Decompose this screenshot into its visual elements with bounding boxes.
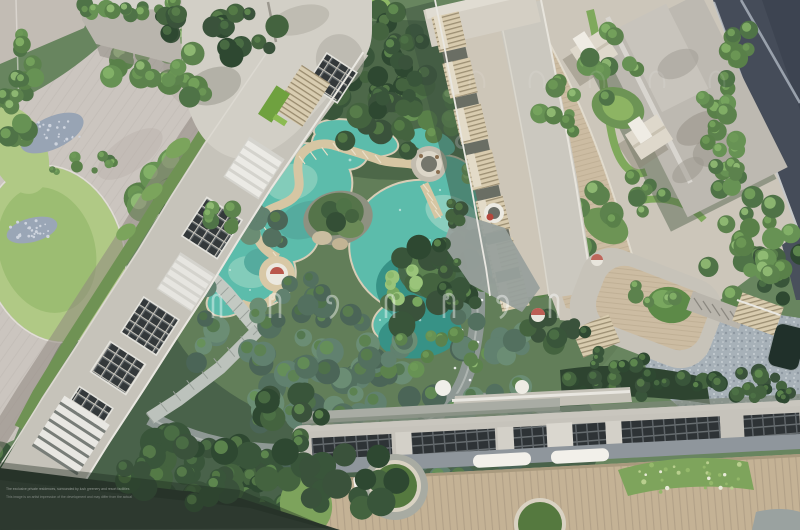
svg-text:This image is an artist impres: This image is an artist impression of th… <box>6 495 132 499</box>
svg-text:The exclusive private residenc: The exclusive private residences, surrou… <box>6 487 130 491</box>
